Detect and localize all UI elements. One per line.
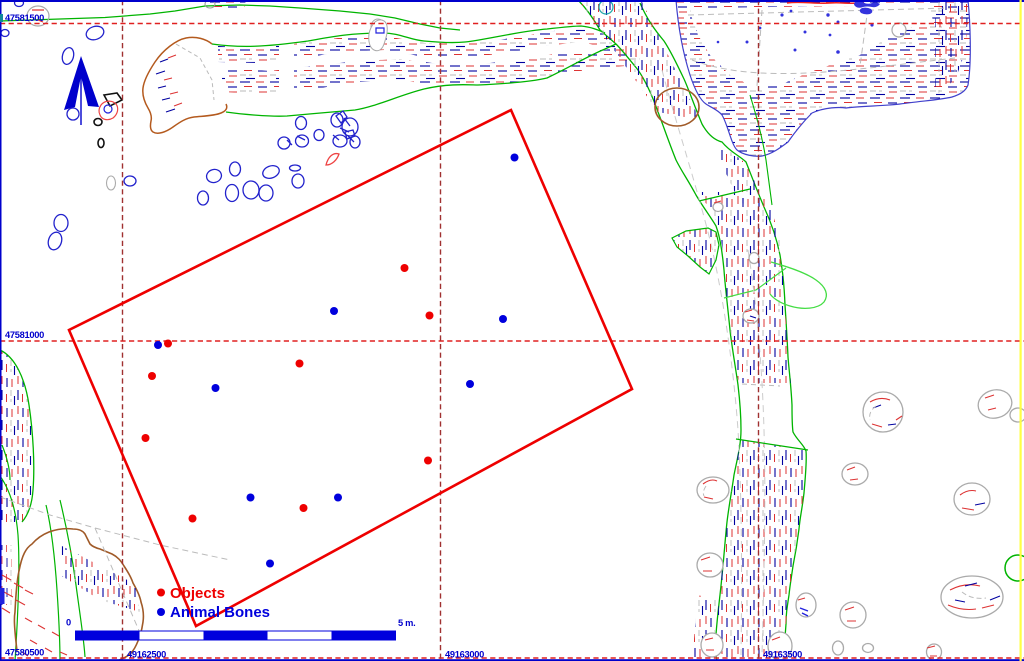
- svg-text:Objects: Objects: [170, 585, 225, 602]
- svg-text:49163500: 49163500: [763, 650, 802, 660]
- svg-text:47580500: 47580500: [5, 648, 44, 658]
- svg-text:47581500: 47581500: [5, 13, 44, 23]
- svg-text:47581000: 47581000: [5, 330, 44, 340]
- svg-text:5 m.: 5 m.: [398, 618, 415, 628]
- svg-text:Animal Bones: Animal Bones: [170, 604, 270, 621]
- svg-text:0: 0: [66, 618, 71, 628]
- svg-text:49163000: 49163000: [445, 650, 484, 660]
- svg-text:49162500: 49162500: [127, 650, 166, 660]
